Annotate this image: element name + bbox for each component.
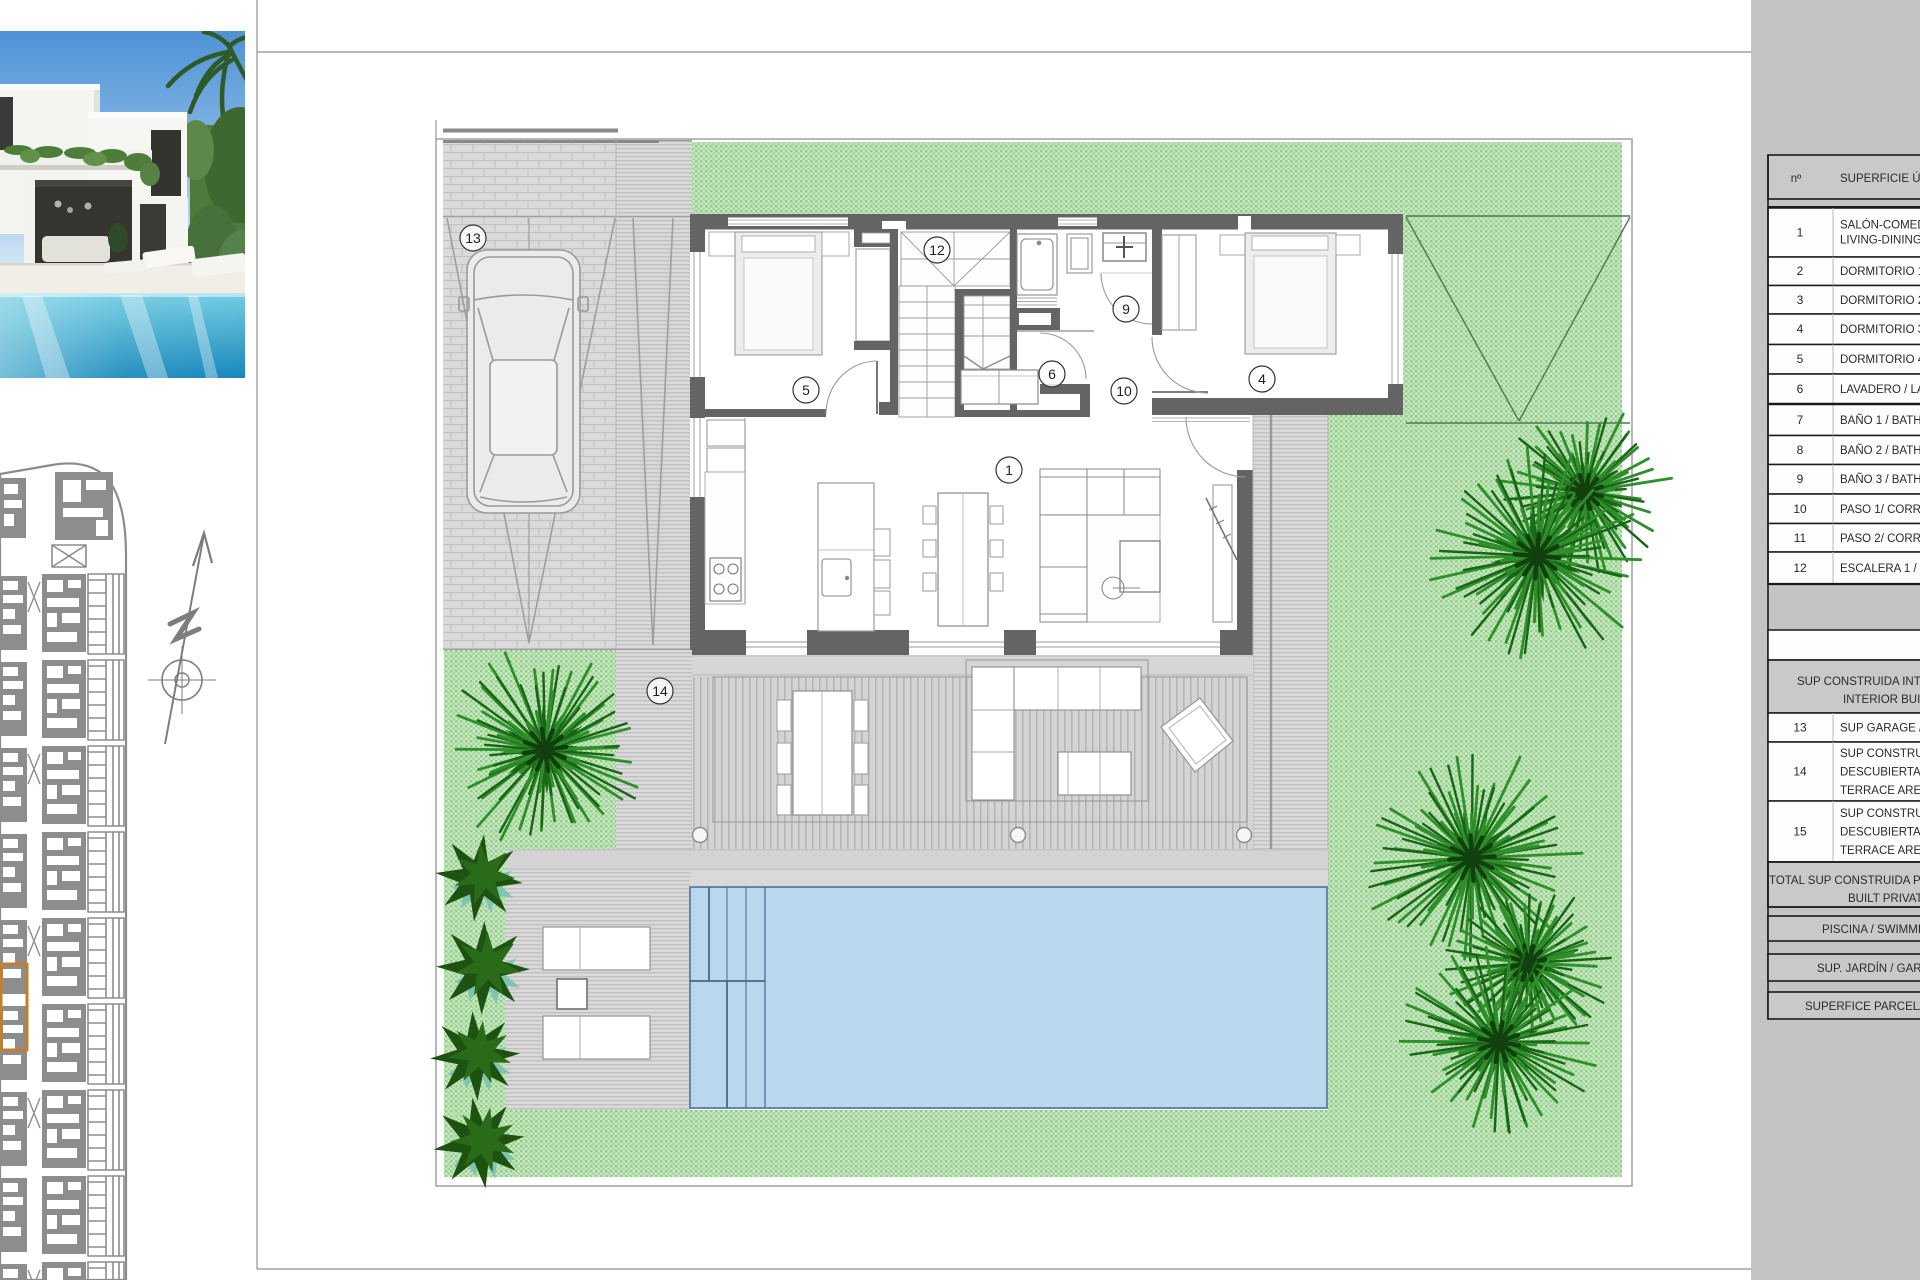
svg-text:9: 9: [1797, 472, 1804, 486]
svg-text:TERRACE AREA: TERRACE AREA: [1840, 785, 1920, 797]
svg-text:LIVING-DINING ROOM: LIVING-DINING ROOM: [1840, 235, 1920, 247]
svg-text:13: 13: [465, 230, 481, 246]
svg-text:4: 4: [1258, 371, 1266, 387]
svg-text:14: 14: [1793, 765, 1807, 779]
svg-text:4: 4: [1797, 322, 1804, 336]
svg-text:DESCUBIERTA / OPEN: DESCUBIERTA / OPEN: [1840, 767, 1920, 779]
svg-text:DORMITORIO 4 / BEDROOM 4: DORMITORIO 4 / BEDROOM 4: [1840, 354, 1920, 366]
svg-text:ESCALERA 1 / STAIRS 1: ESCALERA 1 / STAIRS 1: [1840, 563, 1920, 575]
svg-text:DORMITORIO 2 / BEDROOM 2: DORMITORIO 2 / BEDROOM 2: [1840, 295, 1920, 307]
svg-text:SALÓN-COMEDOR /: SALÓN-COMEDOR /: [1840, 219, 1920, 232]
svg-text:BAÑO 1 / BATHROOM 1: BAÑO 1 / BATHROOM 1: [1840, 414, 1920, 427]
svg-text:6: 6: [1048, 366, 1056, 382]
svg-text:nº: nº: [1791, 173, 1802, 185]
svg-text:PASO 2/ CORRIDOR 2: PASO 2/ CORRIDOR 2: [1840, 533, 1920, 545]
svg-text:SUPERFICE PARCELA / PLOT AREA: SUPERFICE PARCELA / PLOT AREA: [1805, 1001, 1920, 1013]
svg-text:14: 14: [652, 683, 668, 699]
svg-text:12: 12: [1793, 561, 1807, 575]
svg-text:6: 6: [1797, 382, 1804, 396]
svg-text:10: 10: [1116, 383, 1132, 399]
svg-text:SUP. JARDÍN / GARDEN AREA: SUP. JARDÍN / GARDEN AREA: [1817, 962, 1920, 975]
svg-text:10: 10: [1793, 502, 1807, 516]
svg-text:5: 5: [802, 382, 810, 398]
svg-text:SUP GARAGE / GARAGE: SUP GARAGE / GARAGE: [1840, 723, 1920, 735]
svg-text:15: 15: [1793, 825, 1807, 839]
svg-text:SUPERFICIE ÚTIL / USEFUL AREA: SUPERFICIE ÚTIL / USEFUL AREA: [1840, 172, 1920, 185]
svg-text:LAVADERO / LAUNDRY: LAVADERO / LAUNDRY: [1840, 384, 1920, 396]
svg-text:SUP CONSTRUIDA NO: SUP CONSTRUIDA NO: [1840, 808, 1920, 820]
svg-text:12: 12: [929, 242, 945, 258]
svg-text:BUILT PRIVATE AREA: BUILT PRIVATE AREA: [1848, 893, 1920, 905]
svg-text:13: 13: [1793, 721, 1807, 735]
svg-text:7: 7: [1797, 413, 1804, 427]
svg-text:2: 2: [1797, 264, 1804, 278]
svg-text:5: 5: [1797, 352, 1804, 366]
svg-text:11: 11: [1794, 531, 1807, 545]
svg-text:SUP CONSTRUIDA NO: SUP CONSTRUIDA NO: [1840, 748, 1920, 760]
svg-text:SUP CONSTRUIDA INTERIOR /: SUP CONSTRUIDA INTERIOR /: [1797, 676, 1920, 688]
svg-text:BAÑO 2 / BATHROOM 2: BAÑO 2 / BATHROOM 2: [1840, 444, 1920, 457]
svg-text:INTERIOR BUILT AREA: INTERIOR BUILT AREA: [1843, 694, 1920, 706]
svg-text:TERRACE AREA: TERRACE AREA: [1840, 845, 1920, 857]
svg-text:1: 1: [1005, 462, 1013, 478]
svg-text:TOTAL SUP CONSTRUIDA PRIVADA /: TOTAL SUP CONSTRUIDA PRIVADA /: [1769, 875, 1920, 887]
svg-text:DORMITORIO 1 / BEDROOM 1: DORMITORIO 1 / BEDROOM 1: [1840, 266, 1920, 278]
svg-text:8: 8: [1797, 443, 1804, 457]
svg-text:3: 3: [1797, 293, 1804, 307]
svg-text:9: 9: [1122, 301, 1130, 317]
svg-text:PISCINA / SWIMMING POOL: PISCINA / SWIMMING POOL: [1822, 924, 1920, 936]
svg-text:PASO 1/ CORRIDOR 1: PASO 1/ CORRIDOR 1: [1840, 504, 1920, 516]
svg-text:1: 1: [1797, 226, 1804, 240]
svg-text:DESCUBIERTA / OPEN: DESCUBIERTA / OPEN: [1840, 827, 1920, 839]
svg-text:BAÑO 3 / BATHROOM 3: BAÑO 3 / BATHROOM 3: [1840, 473, 1920, 486]
svg-text:DORMITORIO 3 / BEDROOM 3: DORMITORIO 3 / BEDROOM 3: [1840, 324, 1920, 336]
